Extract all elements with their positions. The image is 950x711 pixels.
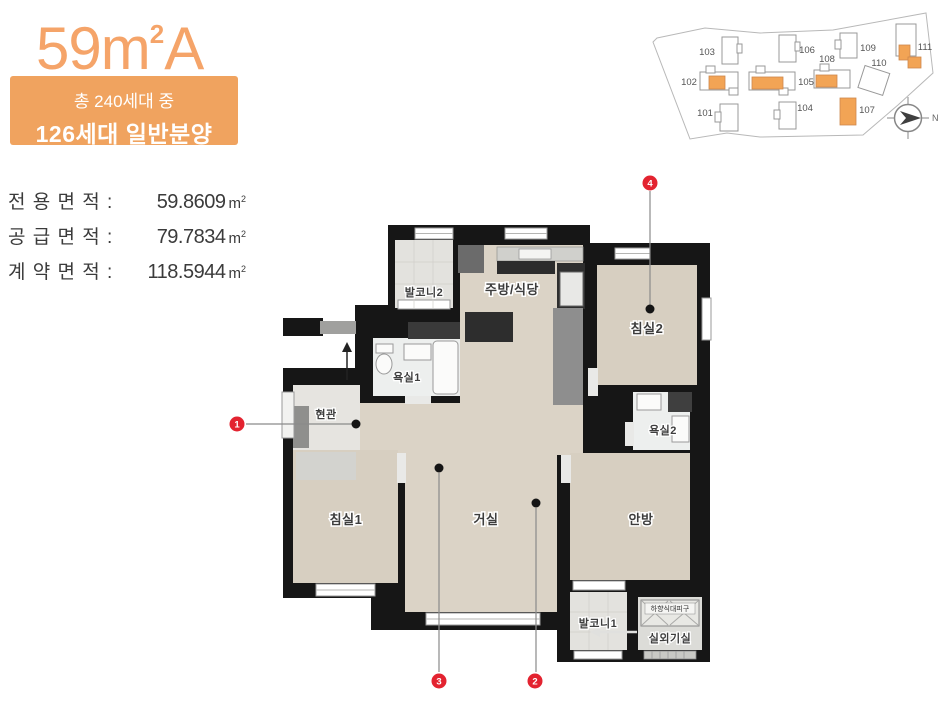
- label-entry: 현관: [315, 407, 336, 421]
- room-living-floor: [405, 450, 557, 612]
- building-label-102: 102: [681, 77, 697, 88]
- building-110: [858, 66, 890, 96]
- building-111-highlight-b: [908, 57, 921, 68]
- building-107-highlight: [840, 98, 856, 125]
- building-label-109: 109: [860, 43, 876, 54]
- building-label-107: 107: [859, 105, 875, 116]
- building-106: [779, 35, 800, 62]
- building-label-101: 101: [697, 108, 713, 119]
- label-balcony2: 발코니2: [405, 285, 443, 299]
- building-label-103: 103: [699, 47, 715, 58]
- building-label-104: 104: [797, 103, 813, 114]
- evac-hatch: [641, 600, 699, 626]
- floor-plan: 발코니2 주방/식당 침실2 욕실1 현관 욕실2 침실1 거실 안방 발코니1…: [282, 225, 711, 662]
- label-balcony1: 발코니1: [579, 616, 617, 630]
- building-label-108: 108: [819, 54, 835, 65]
- label-bedroom1: 침실1: [330, 512, 363, 527]
- label-evac: 하향식대피구: [651, 604, 690, 613]
- label-kitchen: 주방/식당: [485, 282, 539, 297]
- building-label-111: 111: [918, 42, 932, 53]
- site-plan: 101 102 103 104 105 106 107 108 109 110 …: [653, 13, 939, 139]
- niche-cabinet: [320, 321, 356, 334]
- building-label-110: 110: [871, 58, 886, 69]
- label-master: 안방: [629, 512, 654, 527]
- compass-label: N: [932, 113, 939, 123]
- building-105-highlight: [752, 77, 783, 89]
- label-bath1: 욕실1: [393, 370, 421, 384]
- building-108-highlight: [816, 75, 837, 87]
- svg-text:1: 1: [234, 420, 240, 431]
- svg-text:4: 4: [647, 179, 653, 190]
- compass: N: [887, 97, 939, 139]
- building-label-105: 105: [798, 77, 814, 88]
- svg-text:2: 2: [532, 677, 537, 688]
- building-103: [722, 37, 742, 64]
- building-102-highlight: [709, 76, 725, 89]
- building-101: [715, 104, 738, 131]
- label-machine: 실외기실: [649, 631, 691, 645]
- building-label-106: 106: [799, 45, 815, 56]
- building-109: [835, 33, 857, 58]
- svg-text:3: 3: [436, 677, 441, 688]
- label-bedroom2: 침실2: [631, 321, 664, 336]
- building-104: [774, 102, 796, 129]
- label-living: 거실: [474, 512, 499, 527]
- hall-floor: [360, 403, 463, 455]
- bedroom1-furniture: [296, 452, 356, 480]
- plan-canvas: 101 102 103 104 105 106 107 108 109 110 …: [0, 0, 950, 711]
- label-bath2: 욕실2: [649, 423, 677, 437]
